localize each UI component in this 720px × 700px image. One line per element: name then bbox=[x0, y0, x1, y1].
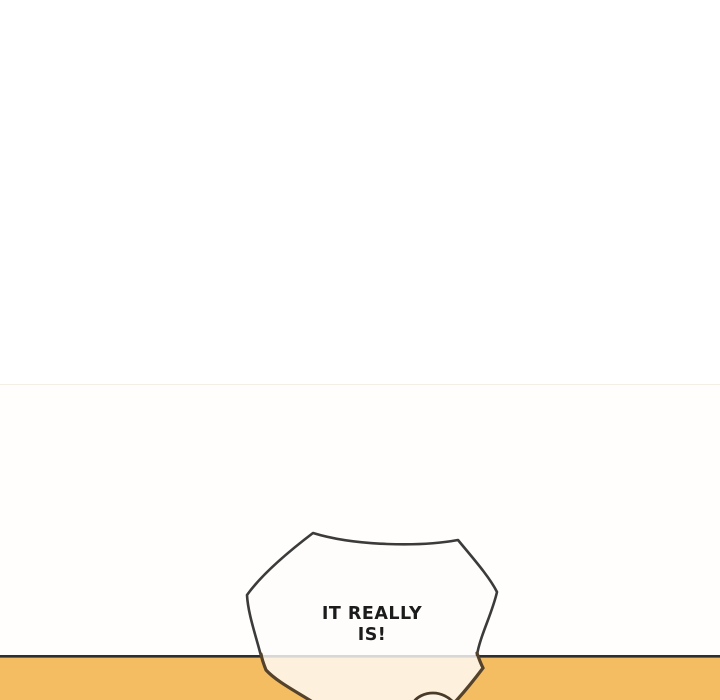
speech-text-line-1: IT REALLY bbox=[262, 604, 482, 625]
webtoon-page: IT REALLY IS! bbox=[0, 0, 720, 700]
speech-text-line-2: IS! bbox=[262, 625, 482, 646]
speech-bubble-text: IT REALLY IS! bbox=[262, 604, 482, 646]
panel-artwork bbox=[0, 0, 720, 700]
